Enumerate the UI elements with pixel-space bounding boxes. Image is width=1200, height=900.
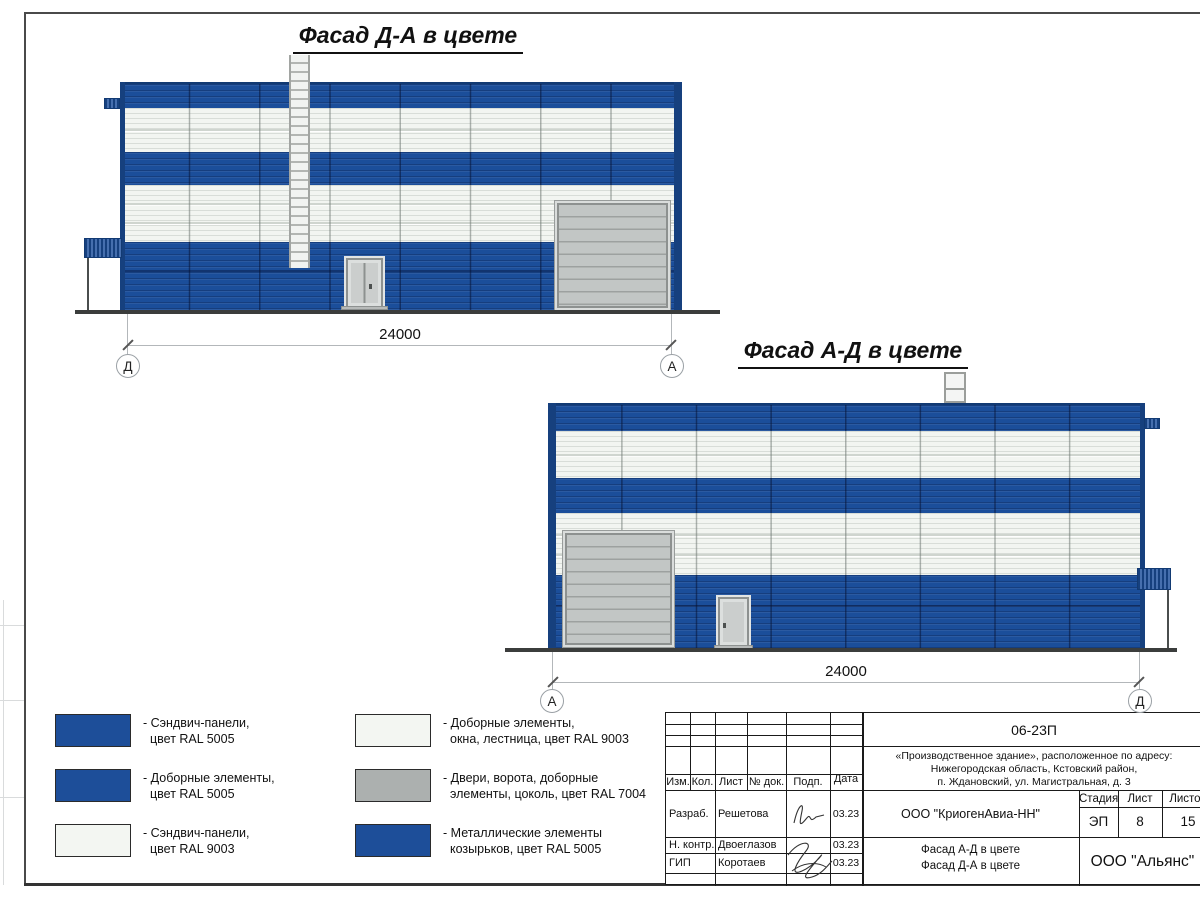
parapet-band [120, 82, 682, 108]
extension-line [1139, 652, 1140, 690]
legend-label: - Доборные элементы,цвет RAL 5005 [143, 770, 275, 802]
frame-top-border [24, 12, 1200, 14]
entrance-door [346, 258, 383, 308]
dimension-value-ad: 24000 [746, 663, 946, 680]
col-podp: Подп. [786, 776, 830, 788]
extension-line [552, 652, 553, 690]
legend-label: - Двери, ворота, доборныеэлементы, цокол… [443, 770, 646, 802]
middle-blue-band [120, 152, 682, 185]
address-line3: п. Ждановский, ул. Магистральная, д. 3 [866, 776, 1200, 788]
col-data: Дата [830, 773, 862, 785]
client-company: ООО "Альянс" [1079, 853, 1200, 871]
margin-cell-line [0, 625, 24, 626]
entrance-canopy [1137, 568, 1171, 590]
legend-swatch-white [355, 714, 431, 747]
extension-line [127, 314, 128, 355]
dimension-line-ad [552, 682, 1140, 683]
axis-marker-d: Д [116, 354, 140, 378]
role-razrab: Разраб. [669, 808, 709, 820]
name-nkontr: Двоеглазов [718, 839, 776, 851]
name-gip: Коротаев [718, 857, 766, 869]
margin-cell-line [0, 797, 24, 798]
corner-trim-right [1140, 403, 1145, 648]
dimension-value-da: 24000 [300, 326, 500, 343]
stage-value: ЭП [1079, 814, 1118, 829]
middle-blue-band [548, 478, 1145, 513]
legend-label: - Металлические элементыкозырьков, цвет … [443, 825, 602, 857]
sheet-value: 8 [1118, 814, 1162, 829]
signature-scribble [780, 837, 836, 883]
facade-da-title: Фасад Д-А в цвете [248, 22, 568, 54]
signature-scribble [788, 795, 830, 835]
sheets-label: Листов [1162, 793, 1200, 805]
sectional-gate [557, 203, 668, 308]
ground-line-da [75, 310, 720, 314]
facade-da-elevation [120, 82, 682, 310]
legend-swatch-blue [355, 824, 431, 857]
stage-label: Стадия [1079, 793, 1118, 805]
title-block: Изм. Кол. Лист № док. Подп. Дата Разраб.… [665, 712, 1200, 885]
date-razrab: 03.23 [830, 808, 862, 820]
parapet-flag [1144, 418, 1160, 429]
corner-trim-left [548, 403, 556, 648]
axis-marker-a: А [540, 689, 564, 713]
window-band-upper [120, 108, 682, 152]
parapet-flag [104, 98, 120, 109]
sheets-value: 15 [1162, 814, 1200, 829]
legend-label: - Сэндвич-панели,цвет RAL 9003 [143, 825, 249, 857]
fire-escape-ladder [289, 55, 310, 268]
legend-label: - Доборные элементы,окна, лестница, цвет… [443, 715, 629, 747]
roof-ladder-top [944, 372, 966, 403]
col-doc: № док. [747, 776, 786, 788]
col-kol: Кол. [690, 776, 715, 788]
subject-line1: Фасад А-Д в цвете [862, 844, 1079, 856]
col-izm: Изм. [666, 776, 690, 788]
legend-swatch-gray [355, 769, 431, 802]
role-nkontr: Н. контр. [669, 839, 714, 851]
frame-left-border [24, 12, 26, 885]
name-razrab: Решетова [718, 808, 768, 820]
canopy-post [87, 258, 89, 310]
corner-trim-right [674, 82, 682, 310]
facade-ad-title: Фасад А-Д в цвете [693, 337, 1013, 369]
ground-line-ad [505, 648, 1177, 652]
margin-column-line [3, 600, 4, 885]
parapet-band [548, 403, 1145, 431]
doc-number: 06-23П [862, 722, 1200, 738]
legend-swatch-blue [55, 769, 131, 802]
facade-ad-elevation [548, 403, 1145, 648]
axis-marker-d: Д [1128, 689, 1152, 713]
legend-label: - Сэндвич-панели,цвет RAL 5005 [143, 715, 249, 747]
address-line1: «Производственное здание», расположенное… [866, 750, 1200, 762]
corner-trim-left [120, 82, 125, 310]
margin-cell-line [0, 700, 24, 701]
window-band-upper [548, 431, 1145, 478]
canopy-post [1167, 590, 1169, 648]
axis-marker-a: А [660, 354, 684, 378]
entrance-canopy [84, 238, 122, 258]
subject-line2: Фасад Д-А в цвете [862, 860, 1079, 872]
entrance-door [718, 597, 749, 647]
dimension-line-da [127, 345, 672, 346]
extension-line [671, 314, 672, 355]
legend-swatch-white [55, 824, 131, 857]
sheet-label: Лист [1118, 793, 1162, 805]
role-gip: ГИП [669, 857, 691, 869]
address-line2: Нижегородская область, Кстовский район, [866, 763, 1200, 775]
sectional-gate [565, 533, 672, 645]
legend-swatch-blue [55, 714, 131, 747]
design-org: ООО "КриогенАвиа-НН" [862, 807, 1079, 821]
col-list: Лист [715, 776, 747, 788]
